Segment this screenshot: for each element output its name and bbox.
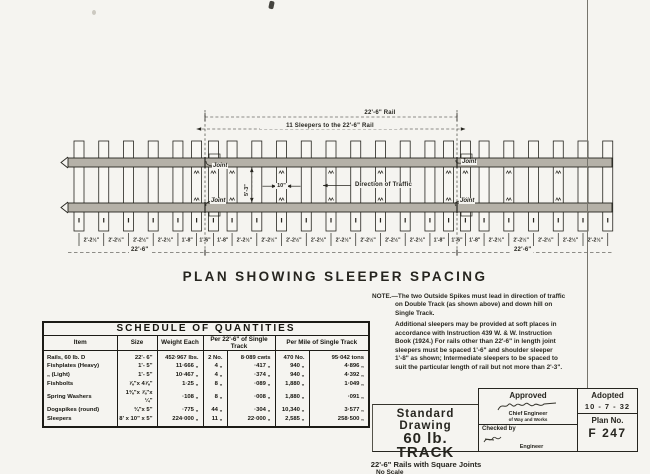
adopted-column: Adopted 10 - 7 - 32 Plan No. F 247 [578,389,637,451]
table-cell: ·091 „ [309,389,369,407]
table-cell: ¾"x 5" [117,406,157,415]
gap-dimension-label: 2'-2½" [489,237,505,244]
table-cell: ·089 „ [227,380,275,389]
table-cell: 2,585 „ [275,415,309,427]
table-cell: 4·392 „ [309,371,369,380]
gap-dimension-label: 2'-2½" [237,237,253,244]
table-row: Dogspikes (round)¾"x 5"·775 „44 „·304 „1… [43,406,369,415]
gap-dimension-label: 2'-2½" [588,237,604,244]
column-header-size: Size [117,335,157,350]
gap-dimension-label: 1'-8" [217,238,229,244]
gap-dimension-label: 1'-8" [434,238,446,244]
adopted-label: Adopted [578,389,637,400]
title-block: Standard Drawing 60 lb. TRACK 22'-6" Rai… [372,404,478,452]
column-header-per-rail: Per 22'-6" of Single Track [203,335,275,350]
table-cell: Sleepers [43,415,117,427]
rail-length-label-left: 22'-6" [129,247,150,253]
table-header-row: Item Size Weight Each Per 22'-6" of Sing… [43,335,369,350]
table-cell: ·417 „ [227,362,275,371]
column-header-weight: Weight Each [157,335,203,350]
checked-signature [482,433,504,445]
table-cell: Fishplates (Heavy) [43,362,117,371]
gap-dimension-label: 2'-2½" [133,237,149,244]
drawing-scale: No Scale [376,469,478,474]
plan-no-label: Plan No. [578,414,637,425]
table-cell: 1,880 „ [275,389,309,407]
table-cell: 2 No. [203,350,227,362]
table-row: Sleepers8' x 10" x 5"224·000 „11 „22·000… [43,415,369,427]
gap-dimension-label: 2'-2½" [360,237,376,244]
approved-role-line2: of Way and Works [479,417,577,422]
gauge-dimension: 5'-3" [244,184,250,196]
joint-label-bottom-right: Joint [459,198,475,204]
gap-dimension-label: 2'-2½" [336,237,352,244]
table-cell: 95·042 tons [309,350,369,362]
gap-dimension-label: 2'-2½" [158,237,174,244]
table-cell: Fishbolts [43,380,117,389]
gap-dimension-label: 2'-2½" [538,237,554,244]
table-cell: 44 „ [203,406,227,415]
drawing-sheet: 2'-2½"2'-2½"2'-2½"2'-2½"1'-8"1'-6"1'-8"2… [0,0,650,474]
table-title-row: SCHEDULE OF QUANTITIES [43,322,369,335]
table-cell: ⅞"x 4⅞" [117,380,157,389]
table-cell: 224·000 „ [157,415,203,427]
rail-length-label-right: 22'-6" [512,247,533,253]
adopted-date: 10 - 7 - 32 [578,402,637,411]
table-cell: 22'- 6" [117,350,157,362]
note-paragraph-2: Additional sleepers may be provided at s… [372,321,566,372]
rail-length-dimension: 22'-6" Rail [330,110,430,116]
note-paragraph-1: NOTE.—The two Outside Spikes must lead i… [372,293,566,318]
column-header-item: Item [43,335,117,350]
table-cell: 8·089 cwts [227,350,275,362]
plan-number-section: Plan No. F 247 [578,414,637,440]
gap-dimension-label: 2'-2½" [563,237,579,244]
table-cell: ·108 „ [157,389,203,407]
table-cell: ·775 „ [157,406,203,415]
gap-dimension-label: 2'-2½" [513,237,529,244]
table-cell: 8 „ [203,389,227,407]
table-cell: 1,880 „ [275,380,309,389]
table-cell: 10,340 „ [275,406,309,415]
gap-dimension-label: 2'-2½" [410,237,426,244]
drawing-title-line2: 60 lb. TRACK [373,432,478,460]
table-cell: „ (Light) [43,371,117,380]
table-row: Rails, 60 lb. D22'- 6"452·967 lbs.2 No.8… [43,350,369,362]
joint-label-top-right: Joint [461,159,477,165]
drawing-title-line1: Standard Drawing [373,408,478,432]
table-cell: 3·577 „ [309,406,369,415]
table-row: Fishbolts⅞"x 4⅞"1·25 „8 „·089 „1,880 „1·… [43,380,369,389]
table-cell: 1·049 „ [309,380,369,389]
table-row: Fishplates (Heavy)1'- 5"11·666 „4 „·417 … [43,362,369,371]
note-block: NOTE.—The two Outside Spikes must lead i… [372,293,566,372]
checked-section: Checked by Engineer [479,425,577,452]
table-cell: 258·500 „ [309,415,369,427]
sleeper-width-dimension: 10" [275,183,288,189]
table-cell: 4 „ [203,362,227,371]
direction-of-traffic-label: Direction of Traffic [353,182,414,188]
checked-by-label: Checked by [482,426,516,432]
gap-dimension-label: 2'-2½" [261,237,277,244]
table-cell: 1·25 „ [157,380,203,389]
table-row: „ (Light)1'- 5"10·467 „4 „·374 „940 „4·3… [43,371,369,380]
joint-label-top-left: Joint [212,163,228,169]
gap-dimension-label: 1'-6" [451,238,463,244]
gap-dimension-label: 2'-2½" [311,237,327,244]
gap-dimension-label: 2'-2½" [108,237,124,244]
table-cell: ·008 „ [227,389,275,407]
gap-dimension-label: 1'-6" [199,238,211,244]
table-cell: 1⅜"x ⅞"x ¼" [117,389,157,407]
table-cell: 1'- 5" [117,362,157,371]
table-cell: 940 „ [275,371,309,380]
adopted-section: Adopted 10 - 7 - 32 [578,389,637,414]
table-cell: 470 No. [275,350,309,362]
table-cell: 22·000 „ [227,415,275,427]
gap-dimension-label: 1'-8" [469,238,481,244]
table-cell: 940 „ [275,362,309,371]
plan-title: PLAN SHOWING SLEEPER SPACING [165,269,505,284]
table-cell: ·374 „ [227,371,275,380]
plan-number: F 247 [578,426,637,440]
table-title: SCHEDULE OF QUANTITIES [43,322,369,335]
gap-dimension-label: 1'-8" [182,238,194,244]
scan-smudge [92,10,96,15]
gap-dimension-label: 2'-2½" [84,237,100,244]
engineer-label: Engineer [520,444,544,450]
table-cell: 10·467 „ [157,371,203,380]
column-header-per-mile: Per Mile of Single Track [275,335,369,350]
drawing-title-line3: 22'-6" Rails with Square Joints [365,460,487,469]
table-cell: 8 „ [203,380,227,389]
table-cell: 11 „ [203,415,227,427]
table-cell: 452·967 lbs. [157,350,203,362]
table-cell: Dogspikes (round) [43,406,117,415]
approval-column: Approved Chief Engineer of Way and Works… [479,389,578,451]
table-cell: 1'- 5" [117,371,157,380]
note-label: NOTE.— [372,293,398,300]
table-cell: Spring Washers [43,389,117,407]
table-cell: 11·666 „ [157,362,203,371]
approval-block: Approved Chief Engineer of Way and Works… [478,388,638,452]
approved-label: Approved [479,389,577,400]
schedule-of-quantities-table: SCHEDULE OF QUANTITIES Item Size Weight … [42,321,370,428]
sheet-border-line [587,0,588,389]
table-cell: 4 „ [203,371,227,380]
approved-section: Approved Chief Engineer of Way and Works [479,389,577,425]
table-cell: 4·896 „ [309,362,369,371]
table-row: Spring Washers1⅜"x ⅞"x ¼"·108 „8 „·008 „… [43,389,369,407]
gap-dimension-label: 2'-2½" [286,237,302,244]
sleepers-per-rail-dimension: 11 Sleepers to the 22'-6" Rail [260,123,400,129]
gap-dimension-label: 2'-2½" [385,237,401,244]
table-cell: Rails, 60 lb. D [43,350,117,362]
table-cell: 8' x 10" x 5" [117,415,157,427]
joint-label-bottom-left: Joint [210,198,226,204]
table-cell: ·304 „ [227,406,275,415]
